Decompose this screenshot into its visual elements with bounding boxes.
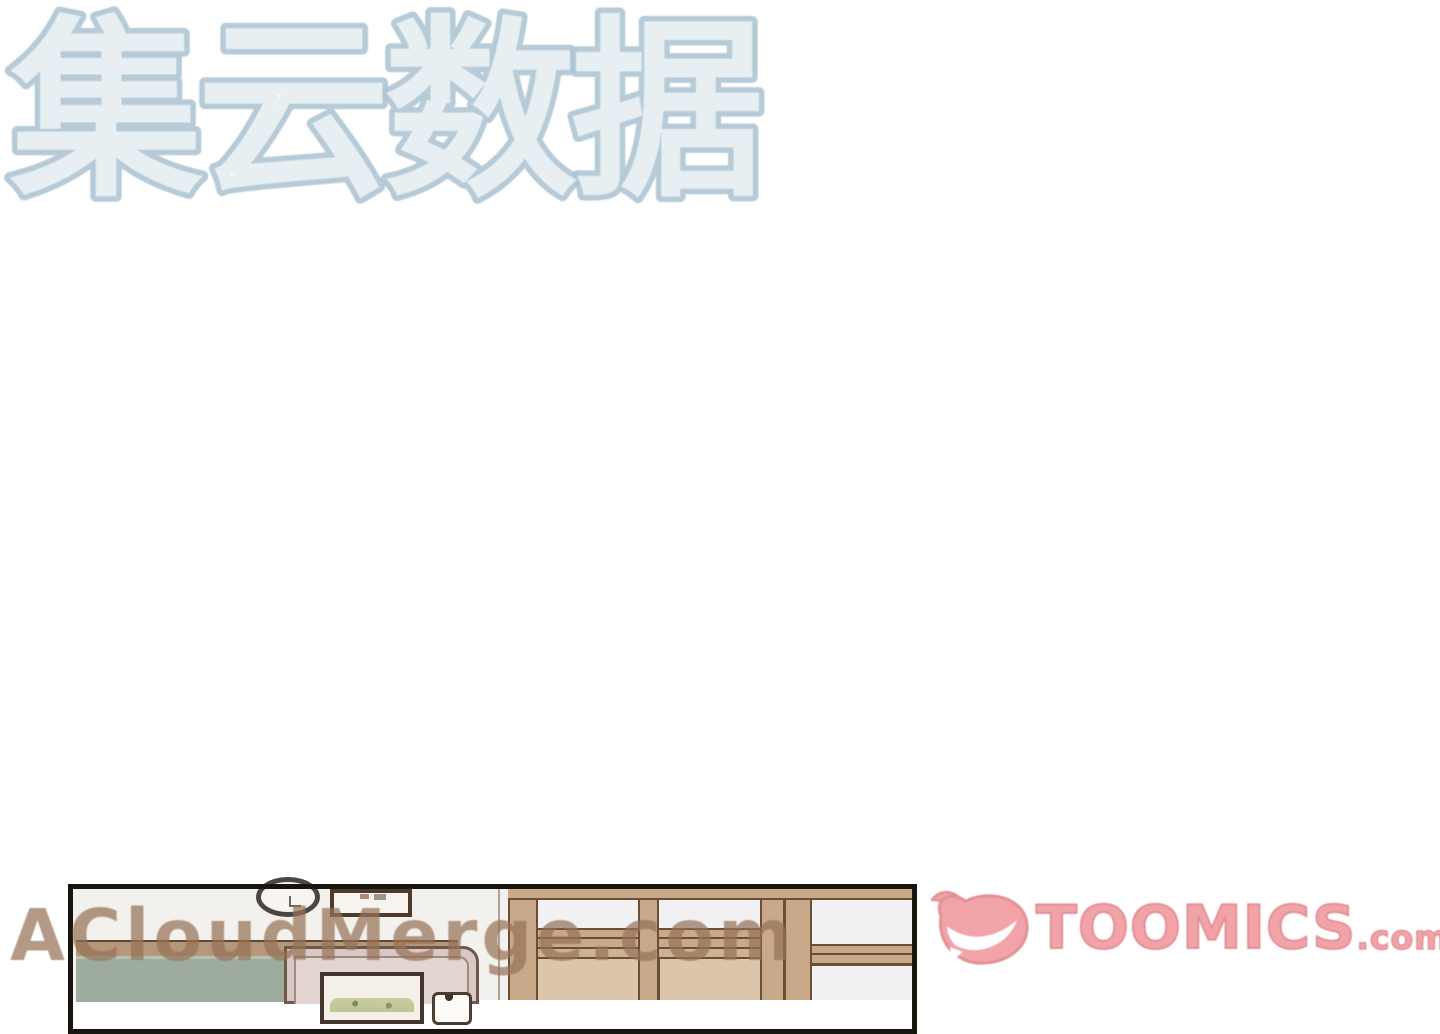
brand-logo: TOOMICS .com bbox=[930, 884, 1430, 968]
comic-panel bbox=[68, 870, 917, 1000]
light-switch bbox=[432, 992, 472, 1025]
framed-picture bbox=[320, 972, 424, 1024]
door-wood-panel bbox=[536, 957, 640, 1000]
toomics-mascot-icon bbox=[930, 888, 1030, 966]
pink-door-inner-panel bbox=[294, 956, 469, 1004]
cjk-watermark: 集云数据 bbox=[0, 0, 820, 310]
small-picture-frame bbox=[330, 889, 412, 917]
chalkboard bbox=[76, 956, 284, 1002]
clock-hands bbox=[289, 896, 301, 907]
cjk-watermark-text: 集云数据 bbox=[9, 0, 759, 224]
door-wood-panel bbox=[658, 957, 762, 1000]
sliding-wood-door bbox=[508, 889, 917, 1000]
door-stile bbox=[508, 889, 538, 1000]
door-center-stile bbox=[760, 889, 812, 1000]
door-top-rail bbox=[508, 889, 917, 900]
frame-art-mark bbox=[374, 894, 386, 900]
wall-clock bbox=[256, 877, 320, 917]
brand-name: TOOMICS bbox=[1036, 898, 1356, 958]
webtoon-page: { "page": { "background_color": "#ffffff… bbox=[0, 0, 1440, 1000]
pink-door bbox=[284, 946, 479, 1004]
brand-suffix: .com bbox=[1356, 918, 1440, 957]
door-mullion bbox=[638, 889, 659, 1000]
picture-artwork bbox=[330, 998, 414, 1012]
door-frame-edge-line bbox=[498, 889, 500, 1000]
frame-art-mark bbox=[360, 894, 369, 899]
